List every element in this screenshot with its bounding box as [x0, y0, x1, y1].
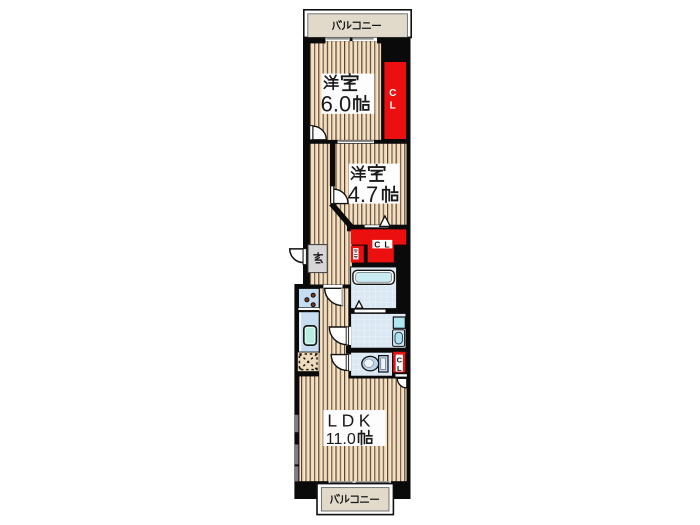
svg-text:6.0: 6.0: [321, 92, 352, 117]
svg-text:L: L: [397, 364, 402, 373]
svg-text:C: C: [389, 88, 396, 99]
svg-text:L: L: [390, 101, 396, 112]
svg-text:L: L: [384, 239, 389, 249]
svg-text:11.0: 11.0: [326, 431, 356, 448]
svg-text:C: C: [374, 239, 380, 249]
svg-text:LDK: LDK: [327, 411, 375, 431]
svg-text:C: C: [397, 355, 403, 364]
svg-text:4.7: 4.7: [348, 182, 379, 207]
